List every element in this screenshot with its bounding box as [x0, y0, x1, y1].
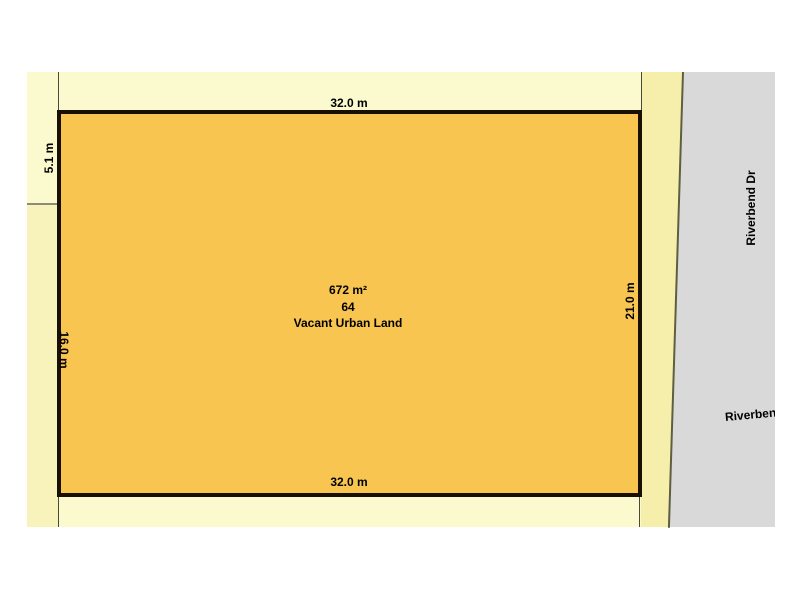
cadastral-map: Riverbend Dr Riverbend 32.0 m 32.0 m 21.… [0, 0, 800, 600]
boundary-line-right-top [641, 72, 643, 111]
dimension-label-top: 32.0 m [269, 96, 429, 110]
neighbor-lot-left-lower [27, 204, 58, 527]
road-name-label: Riverbend Dr [744, 170, 758, 245]
dimension-label-left-lower: 16.0 m [57, 331, 71, 368]
dimension-label-left-upper: 5.1 m [42, 143, 56, 174]
parcel-area-label: 672 m² [248, 283, 448, 297]
boundary-line-right-bottom [639, 496, 641, 527]
boundary-line-left-top [58, 72, 60, 111]
boundary-line-left-bottom [58, 496, 60, 527]
parcel-landuse-label: Vacant Urban Land [248, 316, 448, 330]
boundary-line-left-divider [27, 203, 58, 205]
road-area: Riverbend Dr Riverbend [669, 72, 775, 527]
dimension-label-bottom: 32.0 m [269, 475, 429, 489]
road-surface [669, 72, 775, 527]
parcel-lot-number: 64 [248, 300, 448, 314]
dimension-label-right: 21.0 m [623, 282, 637, 319]
